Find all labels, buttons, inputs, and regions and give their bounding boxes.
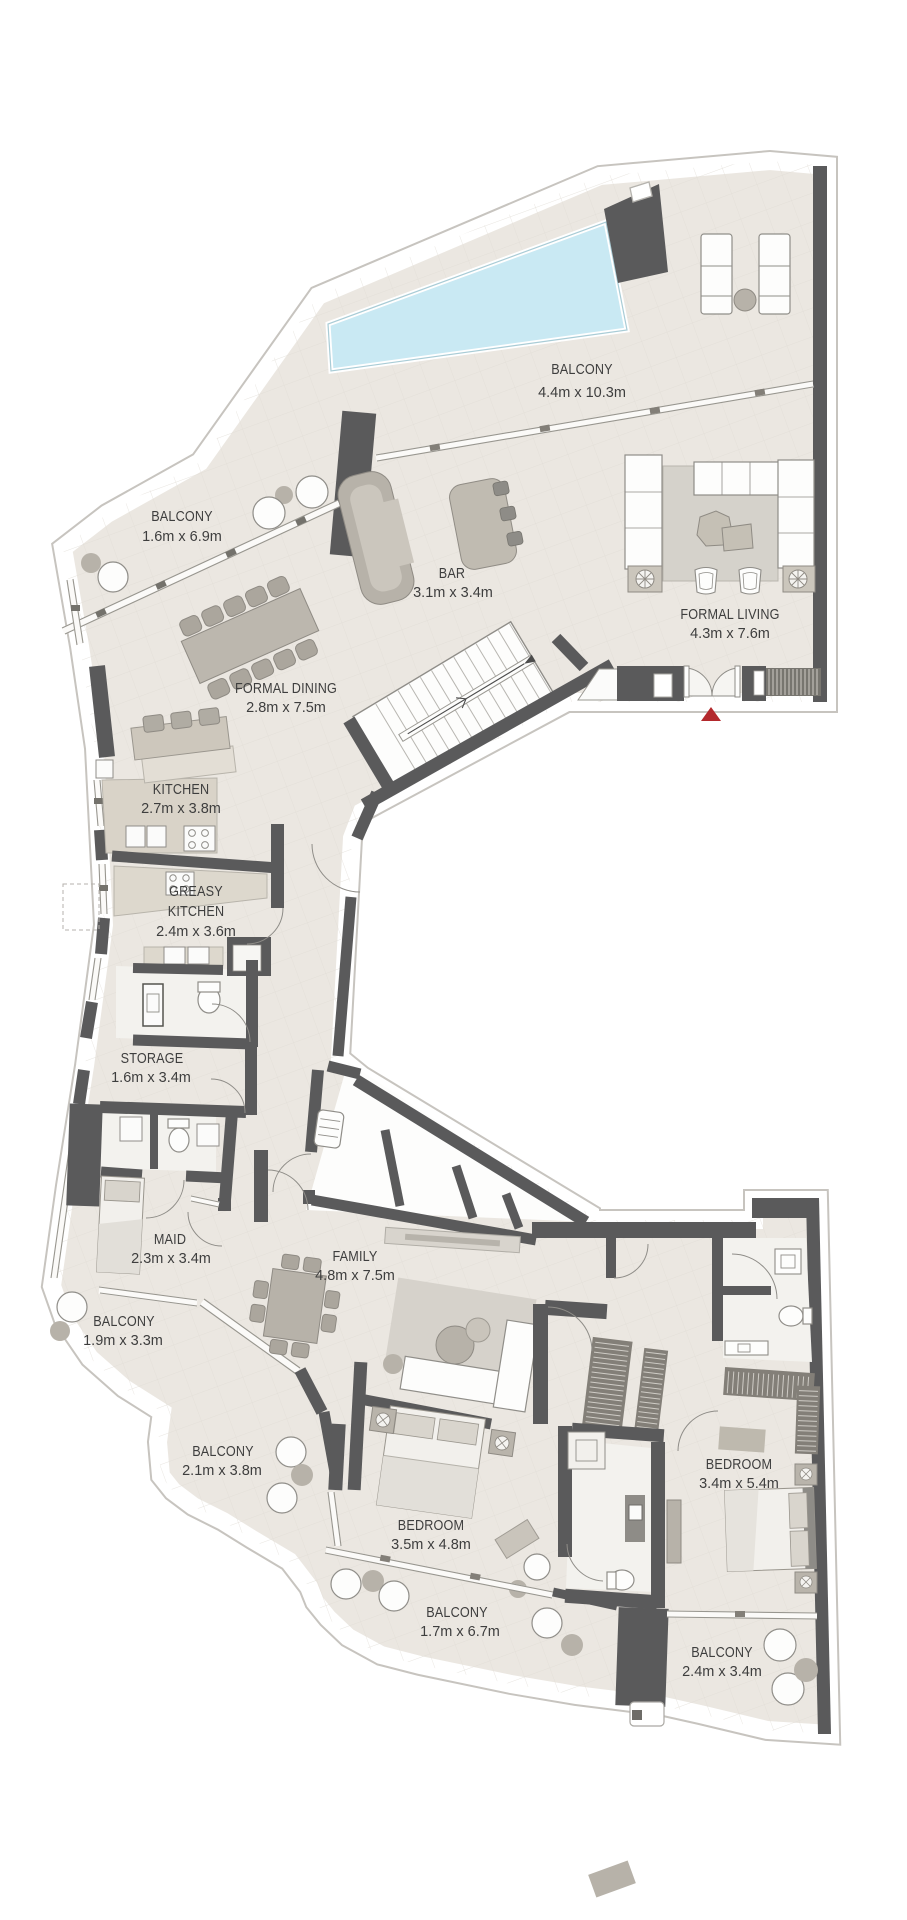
svg-text:2.1m x 3.8m: 2.1m x 3.8m (182, 1463, 262, 1479)
svg-text:1.6m x 6.9m: 1.6m x 6.9m (142, 529, 222, 545)
svg-text:4.3m x 7.6m: 4.3m x 7.6m (690, 626, 770, 642)
svg-text:BAR: BAR (439, 566, 465, 582)
svg-text:KITCHEN: KITCHEN (168, 904, 225, 920)
svg-text:2.8m x 7.5m: 2.8m x 7.5m (246, 700, 326, 716)
svg-text:BEDROOM: BEDROOM (706, 1457, 772, 1473)
svg-text:GREASY: GREASY (169, 884, 223, 900)
svg-text:BALCONY: BALCONY (93, 1314, 155, 1330)
svg-text:4.8m x 7.5m: 4.8m x 7.5m (315, 1268, 395, 1284)
svg-text:MAID: MAID (154, 1232, 186, 1248)
svg-text:3.4m x 5.4m: 3.4m x 5.4m (699, 1476, 779, 1492)
svg-text:FORMAL LIVING: FORMAL LIVING (680, 607, 779, 623)
svg-text:BALCONY: BALCONY (151, 509, 213, 525)
svg-text:2.3m x 3.4m: 2.3m x 3.4m (131, 1251, 211, 1267)
svg-text:4.4m x 10.3m: 4.4m x 10.3m (538, 385, 626, 401)
svg-text:BEDROOM: BEDROOM (398, 1518, 464, 1534)
svg-text:1.7m x 6.7m: 1.7m x 6.7m (420, 1624, 500, 1640)
svg-text:1.9m x 3.3m: 1.9m x 3.3m (83, 1333, 163, 1349)
svg-text:2.7m x 3.8m: 2.7m x 3.8m (141, 801, 221, 817)
svg-text:KITCHEN: KITCHEN (153, 782, 210, 798)
svg-text:FAMILY: FAMILY (332, 1249, 377, 1265)
svg-text:BALCONY: BALCONY (192, 1444, 254, 1460)
svg-text:3.5m x 4.8m: 3.5m x 4.8m (391, 1537, 471, 1553)
svg-text:1.6m x 3.4m: 1.6m x 3.4m (111, 1070, 191, 1086)
svg-text:3.1m x 3.4m: 3.1m x 3.4m (413, 585, 493, 601)
svg-text:2.4m x 3.6m: 2.4m x 3.6m (156, 924, 236, 940)
svg-text:BALCONY: BALCONY (426, 1605, 488, 1621)
svg-text:STORAGE: STORAGE (121, 1051, 184, 1067)
svg-text:BALCONY: BALCONY (551, 362, 613, 378)
svg-text:BALCONY: BALCONY (691, 1645, 753, 1661)
svg-text:2.4m x 3.4m: 2.4m x 3.4m (682, 1664, 762, 1680)
svg-text:FORMAL DINING: FORMAL DINING (235, 681, 337, 697)
